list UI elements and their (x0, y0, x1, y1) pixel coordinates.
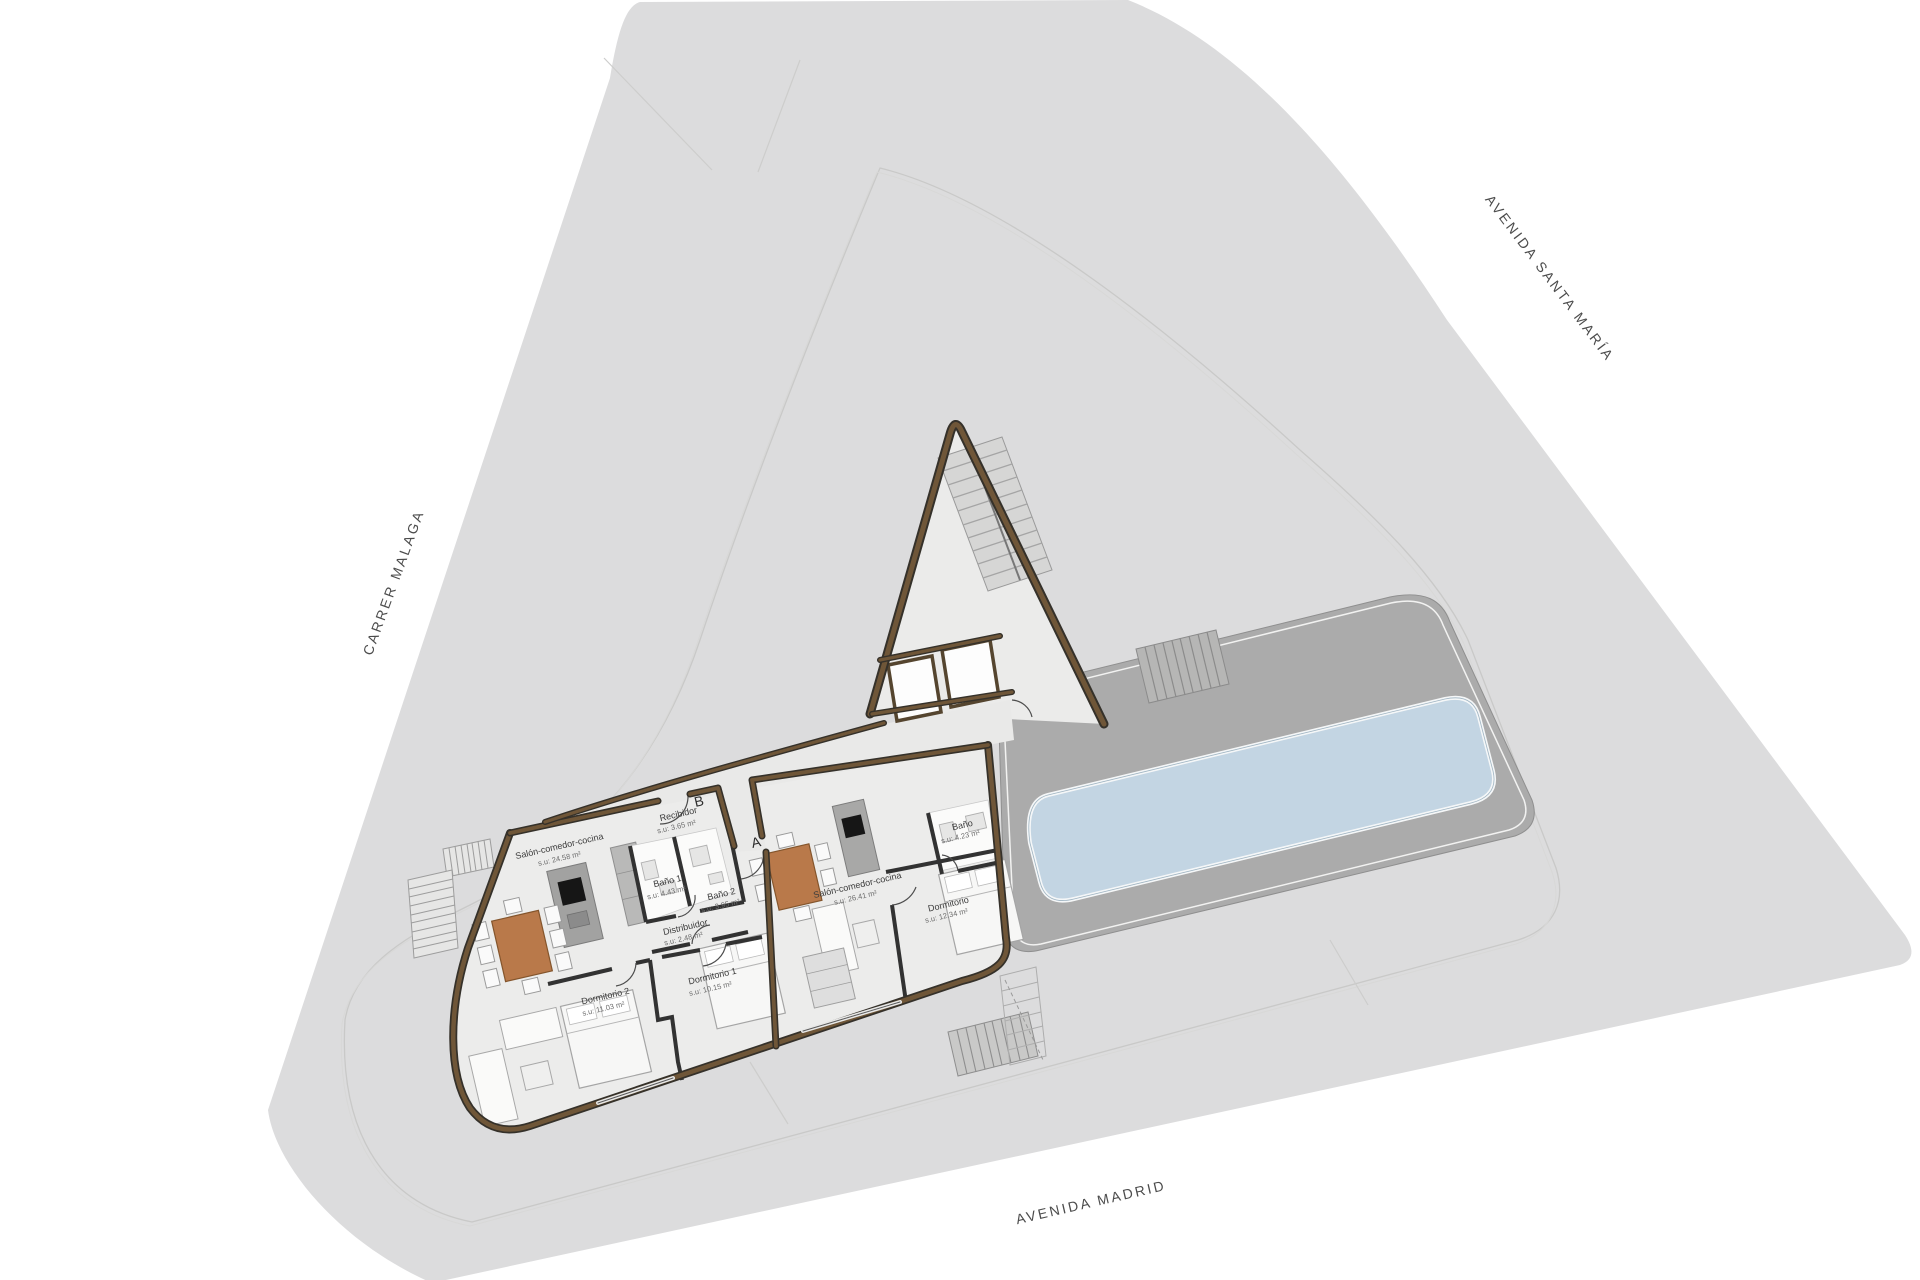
street-label-avenida-santa-maria: AVENIDA SANTA MARÍA (1482, 192, 1618, 365)
street-label-carrer-malaga: CARRER MALAGA (359, 507, 427, 657)
street-label-avenida-madrid: AVENIDA MADRID (1014, 1177, 1167, 1227)
site-plan: CARRER MALAGA AVENIDA SANTA MARÍA AVENID… (0, 0, 1920, 1280)
